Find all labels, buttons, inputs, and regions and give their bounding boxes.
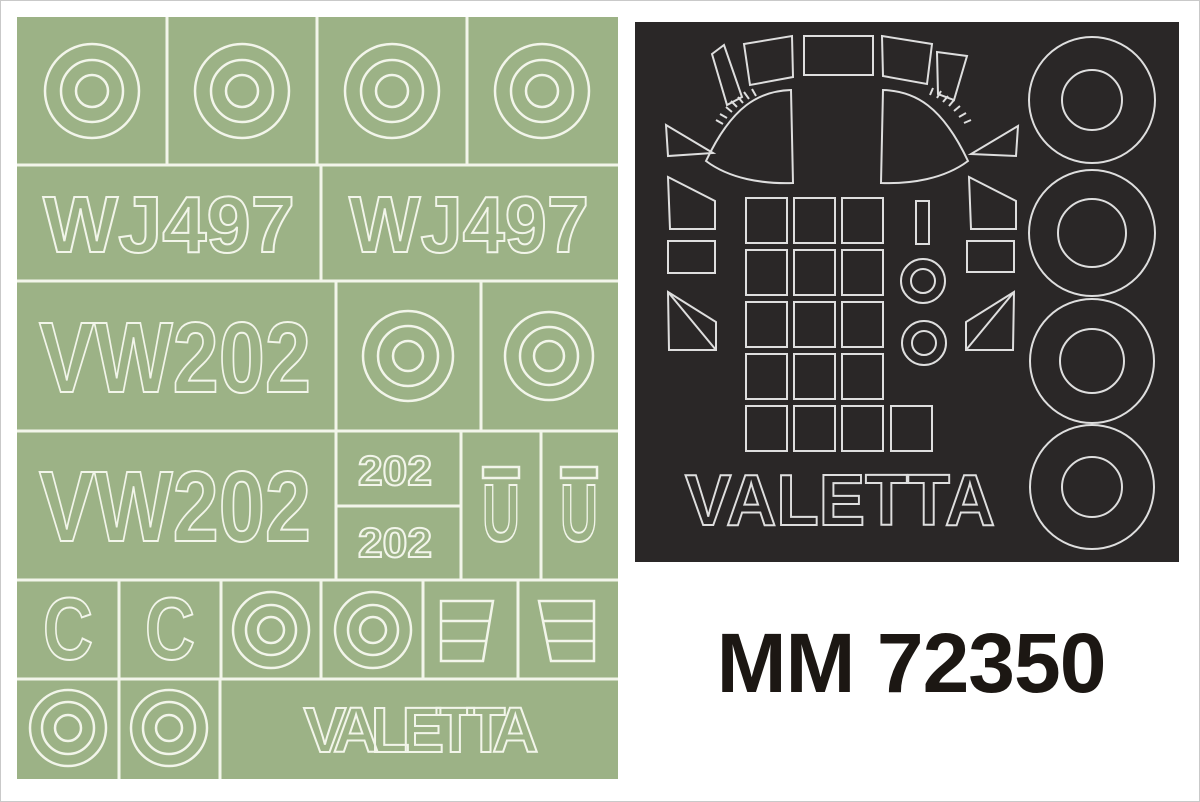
product-code: MM 72350 [641,619,1181,707]
serial-mask-vw202-upper: VW202 [39,302,311,414]
serial-mask-wj497-right: WJ497 [349,180,589,269]
letter-mask-u-right: U [560,467,598,559]
valetta-title-green: VALETTA [304,694,539,766]
letter-mask-c-left: C [43,579,93,678]
serial-mask-vw202-lower: VW202 [39,451,311,563]
number-mask-202-bottom: 202 [358,519,432,566]
svg-text:U: U [560,468,598,559]
letter-mask-c-right: C [145,579,195,678]
number-mask-202-top: 202 [358,447,432,494]
product-image: WJ497 WJ497 VW202 VW202 202 202 U U C C [0,0,1200,802]
letter-mask-u-left: U [482,467,520,559]
serial-mask-wj497-left: WJ497 [43,180,295,269]
valetta-title-black: VALETTA [685,461,995,541]
black-mask-sheet: VALETTA [635,22,1179,562]
svg-text:U: U [482,468,520,559]
green-mask-sheet: WJ497 WJ497 VW202 VW202 202 202 U U C C [17,17,618,779]
